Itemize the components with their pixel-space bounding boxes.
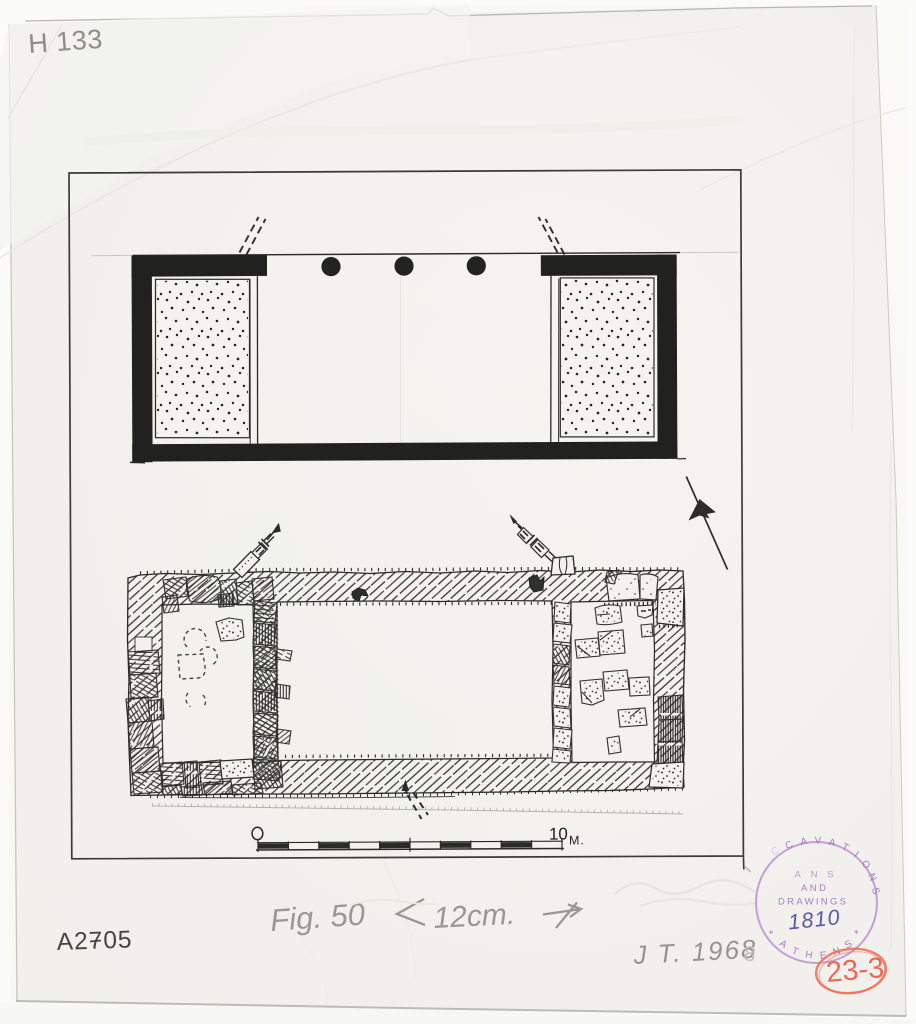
svg-text:V: V [815, 836, 822, 847]
svg-text:10: 10 [549, 824, 568, 843]
svg-text:M.: M. [569, 833, 585, 847]
svg-text:H 133: H 133 [27, 24, 103, 59]
svg-text:Fig. 50: Fig. 50 [269, 896, 366, 938]
svg-text:12cm.: 12cm. [433, 898, 516, 935]
svg-text:ANS: ANS [795, 870, 836, 881]
svg-text:23-3: 23-3 [825, 952, 886, 989]
svg-text:AND: AND [801, 883, 828, 894]
